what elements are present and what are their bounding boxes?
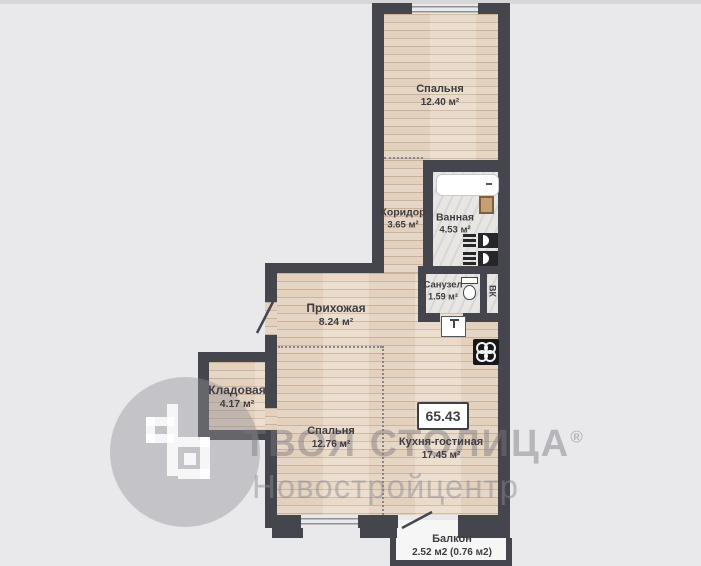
room-name: Прихожая: [306, 301, 365, 316]
balcony-door-icon: [402, 512, 432, 528]
room-name: Кладовая: [208, 383, 265, 398]
label-shaft-vk: ВК: [486, 285, 497, 297]
room-area: 4.53 м²: [436, 225, 474, 237]
label-hallway: Прихожая 8.24 м²: [306, 301, 365, 329]
label-bedroom-top: Спальня 12.40 м²: [416, 83, 464, 109]
total-area-badge: 65.43: [417, 402, 469, 430]
room-area: 2.52 м2 (0.76 м2): [412, 547, 492, 560]
room-area: 12.40 м²: [416, 97, 464, 110]
label-wc: Санузел 1.59 м²: [423, 279, 462, 302]
entrance-door-icon: [257, 296, 276, 333]
floor-plan: ТВОЯ СТОЛИЦА® Новостройцентр Спальня 12.…: [0, 0, 701, 566]
room-name: Коридор: [380, 207, 425, 220]
room-name: Санузел: [423, 279, 462, 291]
room-name: Спальня: [307, 425, 355, 439]
room-area: 1.59 м²: [423, 291, 462, 302]
room-name: Балкон: [412, 533, 492, 547]
room-name: Спальня: [416, 83, 464, 97]
label-balcony: Балкон 2.52 м2 (0.76 м2): [412, 533, 492, 559]
label-corridor: Коридор 3.65 м²: [380, 207, 425, 232]
room-name: Ванная: [436, 212, 474, 225]
label-bedroom-bottom: Спальня 12.76 м²: [307, 425, 355, 451]
room-area: 3.65 м²: [380, 220, 425, 232]
room-name: Кухня-гостиная: [399, 436, 483, 450]
door-swing-lines: [0, 0, 701, 566]
room-area: 17.45 м²: [399, 450, 483, 463]
room-area: 8.24 м²: [306, 316, 365, 329]
label-kitchen-living: Кухня-гостиная 17.45 м²: [399, 436, 483, 462]
label-storage: Кладовая 4.17 м²: [208, 383, 265, 411]
room-area: 12.76 м²: [307, 439, 355, 452]
total-area-value: 65.43: [425, 408, 460, 424]
label-bathroom: Ванная 4.53 м²: [436, 212, 474, 237]
room-area: 4.17 м²: [208, 398, 265, 411]
